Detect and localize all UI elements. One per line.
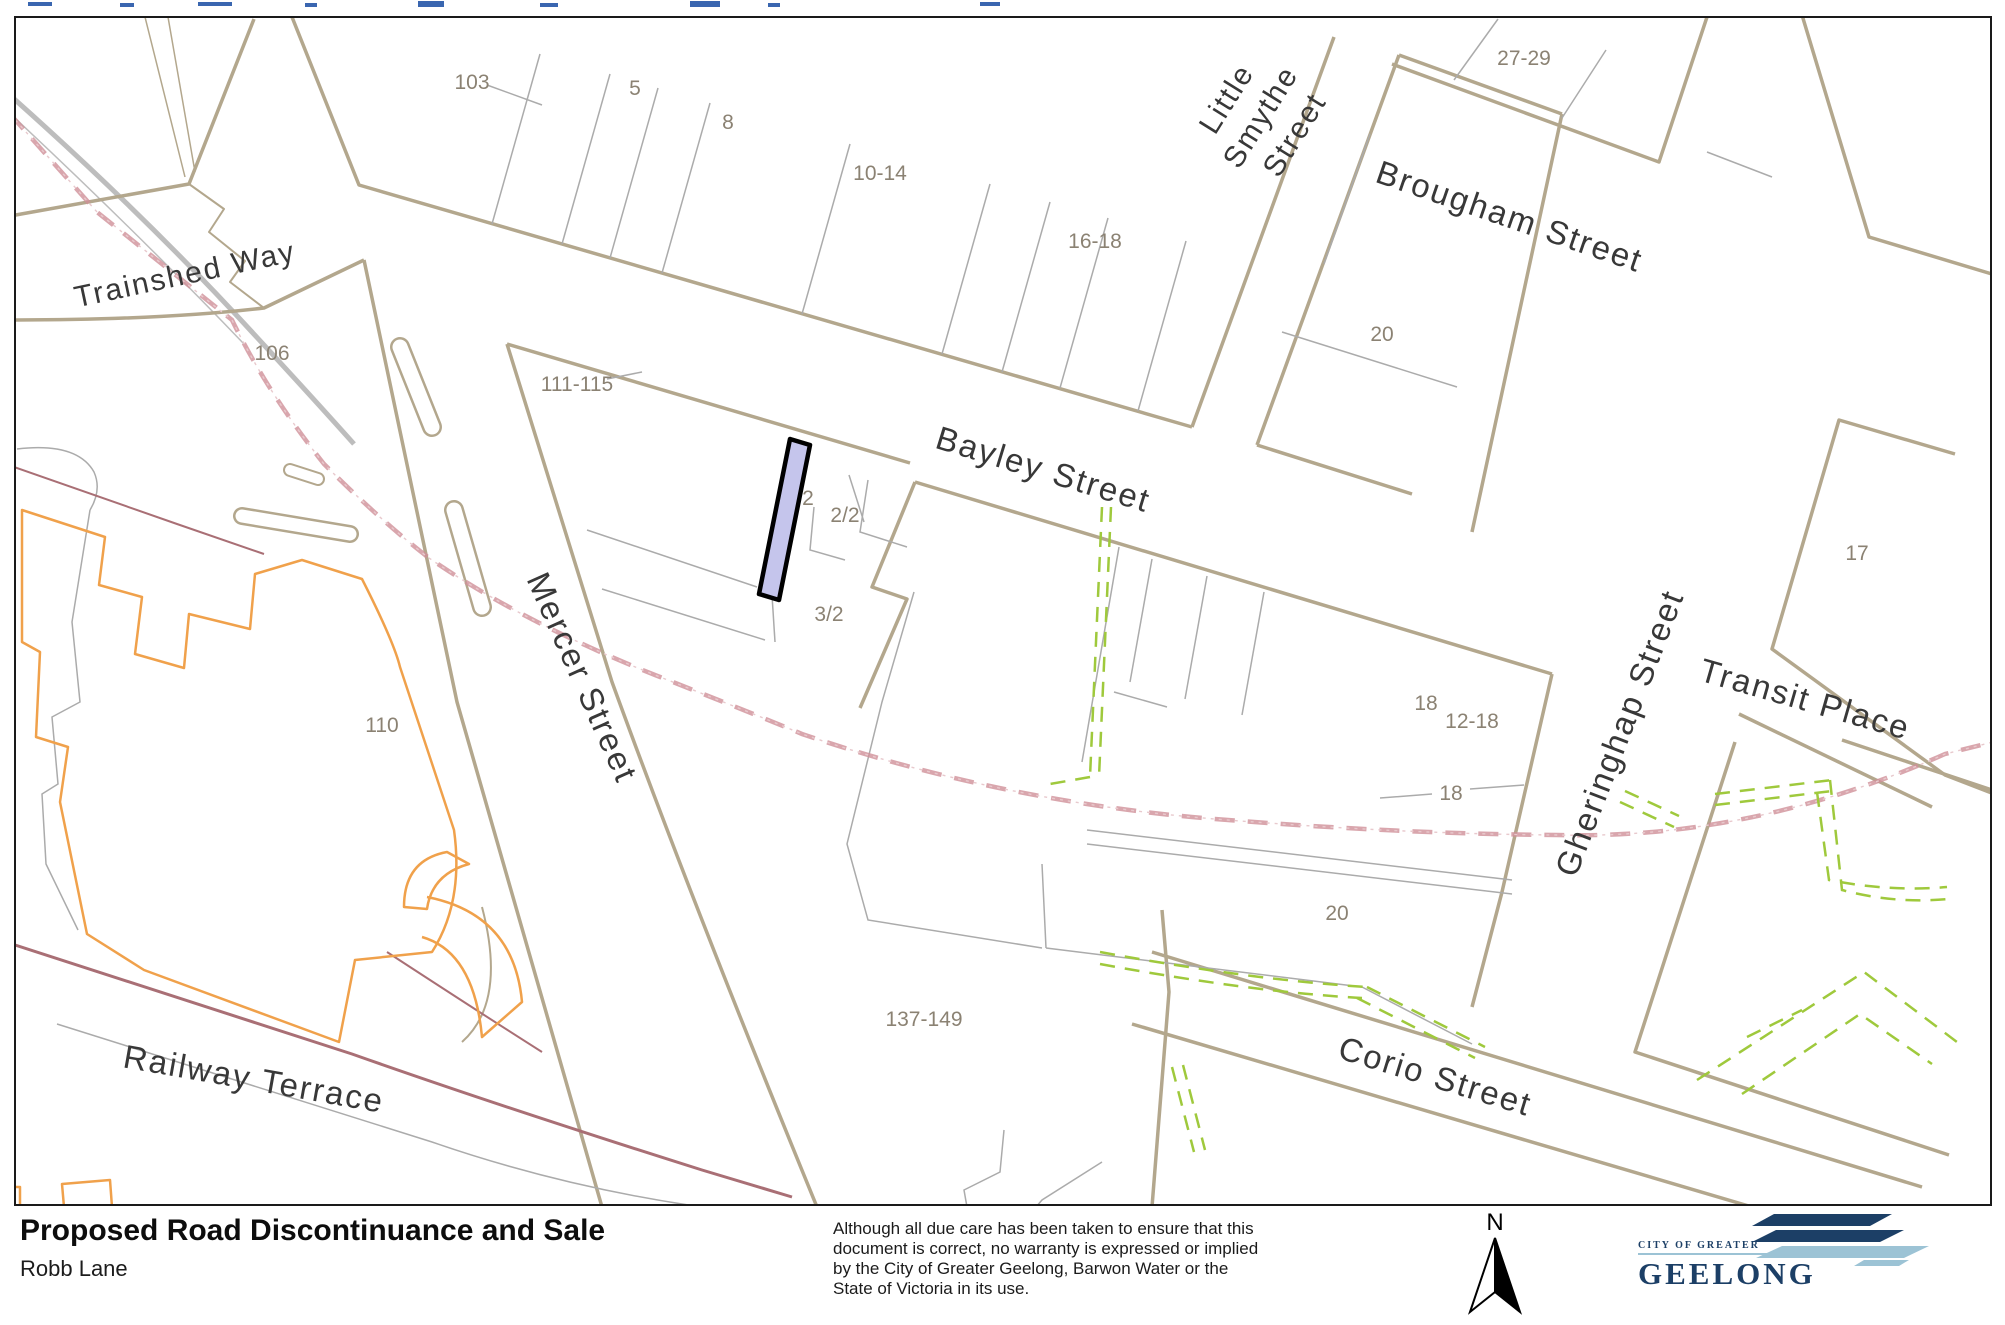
parcel-labels: 103 5 8 10-14 16-18 20 27-29 106 111-115…	[254, 47, 1868, 1031]
parcel-label-103: 103	[454, 71, 489, 94]
parcel-label-20-north: 20	[1370, 323, 1393, 346]
street-label-mercer-street: Mercer Street	[520, 567, 646, 788]
geelong-logo: CITY OF GREATER GEELONG	[1638, 1210, 1938, 1310]
parcel-label-106: 106	[254, 342, 289, 365]
street-label-little-smythe-street: Little Smythe Street	[1193, 58, 1333, 182]
parcel-label-3-2: 3/2	[814, 603, 843, 626]
parcel-label-12-18: 12-18	[1445, 710, 1499, 733]
logo-small-text: CITY OF GREATER	[1638, 1240, 1760, 1251]
north-arrow-right-half	[1495, 1238, 1520, 1312]
parcel-label-18-leader: 18	[1439, 782, 1462, 805]
map-canvas: Trainshed Way Brougham Street Bayley Str…	[14, 16, 1992, 1206]
page-subtitle: Robb Lane	[20, 1256, 128, 1282]
street-label-transit-place: Transit Place	[1696, 651, 1915, 746]
parcel-label-5: 5	[629, 77, 641, 100]
street-label-corio-street: Corio Street	[1334, 1029, 1536, 1123]
disclaimer-line: State of Victoria in its use.	[833, 1279, 1303, 1299]
street-label-gheringhap-street: Gheringhap Street	[1548, 584, 1691, 881]
street-labels: Trainshed Way Brougham Street Bayley Str…	[71, 58, 1914, 1123]
parcel-label-8: 8	[722, 111, 734, 134]
logo-large-text: GEELONG	[1638, 1256, 1816, 1292]
plan-page: Trainshed Way Brougham Street Bayley Str…	[0, 0, 2005, 1325]
parcel-label-20-south: 20	[1325, 902, 1348, 925]
north-label: N	[1486, 1209, 1503, 1236]
map-linework: Trainshed Way Brougham Street Bayley Str…	[16, 18, 1990, 1204]
street-label-brougham-street: Brougham Street	[1372, 153, 1648, 279]
disclaimer-line: Although all due care has been taken to …	[833, 1219, 1303, 1239]
parcel-label-27-29: 27-29	[1497, 47, 1551, 70]
page-title: Proposed Road Discontinuance and Sale	[20, 1214, 605, 1248]
disclaimer-text: Although all due care has been taken to …	[833, 1219, 1303, 1299]
parcel-label-16-18: 16-18	[1068, 230, 1122, 253]
street-label-bayley-street: Bayley Street	[932, 419, 1155, 519]
parcel-label-2-2: 2/2	[830, 504, 859, 527]
parcel-label-10-14: 10-14	[853, 162, 907, 185]
north-arrow-left-half	[1470, 1238, 1495, 1312]
north-arrow: N	[1455, 1208, 1535, 1320]
logo-rule	[1638, 1253, 1806, 1255]
parcel-label-137-149: 137-149	[885, 1008, 962, 1031]
service-lines-green	[1050, 507, 1957, 1152]
parcel-label-110: 110	[365, 714, 398, 737]
road-edges-maroon	[16, 467, 792, 1197]
disclaimer-line: by the City of Greater Geelong, Barwon W…	[833, 1259, 1303, 1279]
disclaimer-line: document is correct, no warranty is expr…	[833, 1239, 1303, 1259]
parcel-label-17: 17	[1845, 542, 1868, 565]
highlighted-parcel-robb-lane	[759, 439, 810, 600]
street-label-trainshed-way: Trainshed Way	[71, 235, 298, 314]
street-label-railway-terrace: Railway Terrace	[121, 1038, 388, 1120]
parcel-label-18: 18	[1414, 692, 1437, 715]
parcel-label-111-115: 111-115	[541, 373, 613, 396]
block-outlines	[16, 18, 1990, 1204]
parcel-label-2: 2	[802, 487, 814, 510]
